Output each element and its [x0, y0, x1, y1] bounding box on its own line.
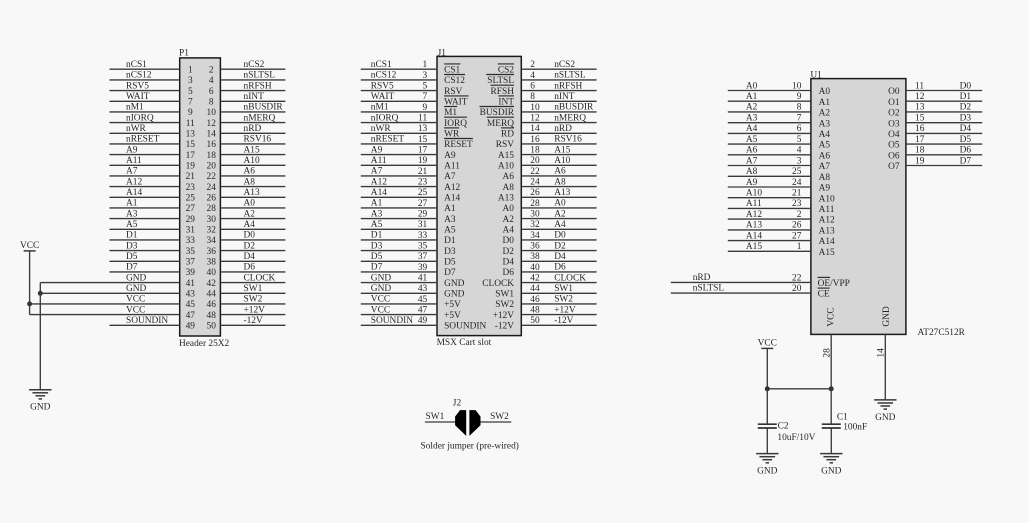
svg-text:D0: D0	[960, 81, 972, 91]
svg-text:VCC: VCC	[126, 295, 145, 305]
svg-text:GND: GND	[444, 279, 465, 289]
svg-text:nRD: nRD	[554, 124, 572, 134]
svg-text:41: 41	[418, 274, 428, 284]
svg-text:14: 14	[207, 130, 217, 140]
svg-text:36: 36	[207, 247, 217, 257]
svg-text:nBUSDIR: nBUSDIR	[554, 103, 594, 113]
svg-text:34: 34	[207, 236, 217, 246]
svg-text:A1: A1	[746, 92, 758, 102]
svg-text:1: 1	[797, 242, 802, 252]
svg-text:29: 29	[418, 210, 428, 220]
svg-text:nRD: nRD	[693, 273, 711, 283]
svg-text:28: 28	[822, 348, 832, 358]
svg-text:A3: A3	[819, 119, 831, 129]
svg-text:A0: A0	[746, 81, 758, 91]
svg-text:RSV5: RSV5	[371, 81, 394, 91]
svg-text:CS12: CS12	[444, 76, 465, 86]
svg-text:10: 10	[792, 81, 802, 91]
svg-text:nCS1: nCS1	[126, 60, 147, 70]
svg-text:nRD: nRD	[244, 124, 262, 134]
svg-text:CLOCK: CLOCK	[482, 279, 514, 289]
svg-text:D4: D4	[503, 258, 515, 268]
svg-text:D5: D5	[960, 135, 972, 145]
svg-text:D2: D2	[244, 241, 256, 251]
svg-text:9: 9	[797, 92, 802, 102]
svg-text:GND: GND	[757, 467, 778, 477]
svg-text:A14: A14	[444, 194, 460, 204]
svg-text:A9: A9	[371, 145, 383, 155]
svg-text:8: 8	[209, 98, 214, 108]
svg-text:O4: O4	[888, 130, 900, 140]
svg-text:16: 16	[207, 140, 217, 150]
svg-text:D2: D2	[960, 103, 972, 113]
svg-text:WAIT: WAIT	[126, 92, 150, 102]
svg-text:nINT: nINT	[554, 92, 575, 102]
svg-text:D7: D7	[126, 263, 138, 273]
svg-text:C2: C2	[778, 422, 789, 432]
svg-text:26: 26	[792, 221, 802, 231]
svg-text:D5: D5	[371, 252, 383, 262]
svg-text:GND: GND	[882, 306, 892, 327]
svg-text:22: 22	[207, 172, 217, 182]
svg-text:18: 18	[530, 146, 540, 156]
svg-text:nCS12: nCS12	[126, 71, 152, 81]
svg-text:RSV16: RSV16	[244, 135, 272, 145]
svg-text:A1: A1	[126, 199, 138, 209]
svg-text:A12: A12	[746, 210, 762, 220]
svg-text:A1: A1	[371, 199, 383, 209]
svg-text:9: 9	[188, 108, 193, 118]
svg-text:VCC: VCC	[126, 305, 145, 315]
svg-text:A5: A5	[371, 220, 383, 230]
svg-text:nM1: nM1	[371, 103, 389, 113]
svg-text:7: 7	[423, 92, 428, 102]
svg-text:A2: A2	[554, 209, 566, 219]
svg-text:A15: A15	[498, 151, 514, 161]
svg-text:SW1: SW1	[244, 284, 263, 294]
svg-text:A1: A1	[819, 98, 831, 108]
svg-text:O5: O5	[888, 141, 900, 151]
svg-text:D1: D1	[126, 231, 138, 241]
svg-text:GND: GND	[126, 273, 147, 283]
svg-text:A6: A6	[244, 167, 256, 177]
svg-text:23: 23	[792, 199, 802, 209]
svg-text:A10: A10	[746, 189, 762, 199]
svg-text:A5: A5	[126, 220, 138, 230]
svg-text:A11: A11	[371, 156, 387, 166]
svg-text:49: 49	[418, 316, 428, 326]
svg-text:17: 17	[186, 151, 196, 161]
svg-text:D0: D0	[503, 236, 515, 246]
svg-text:27: 27	[186, 204, 196, 214]
svg-text:+12V: +12V	[244, 305, 266, 315]
svg-text:A4: A4	[819, 130, 831, 140]
svg-text:J1: J1	[438, 48, 447, 58]
svg-text:D1: D1	[960, 92, 972, 102]
svg-text:+12V: +12V	[493, 311, 515, 321]
svg-text:A10: A10	[498, 162, 514, 172]
svg-text:23: 23	[186, 183, 196, 193]
svg-text:nRFSH: nRFSH	[554, 81, 582, 91]
svg-text:22: 22	[530, 167, 540, 177]
svg-text:D2: D2	[503, 247, 515, 257]
svg-text:nINT: nINT	[244, 92, 265, 102]
svg-text:A7: A7	[819, 162, 831, 172]
svg-text:A15: A15	[554, 145, 570, 155]
svg-text:A13: A13	[554, 188, 570, 198]
svg-text:17: 17	[915, 135, 925, 145]
svg-text:26: 26	[207, 194, 217, 204]
svg-text:2: 2	[797, 210, 802, 220]
svg-text:VCC: VCC	[20, 241, 39, 251]
svg-text:SW2: SW2	[495, 300, 514, 310]
svg-text:A7: A7	[444, 172, 456, 182]
svg-text:VCC: VCC	[758, 339, 777, 349]
svg-text:28: 28	[207, 204, 217, 214]
svg-text:O7: O7	[888, 162, 900, 172]
svg-text:44: 44	[207, 290, 217, 300]
svg-text:32: 32	[530, 220, 540, 230]
svg-text:D6: D6	[554, 263, 566, 273]
svg-text:8: 8	[797, 103, 802, 113]
svg-text:D0: D0	[554, 231, 566, 241]
svg-text:O1: O1	[888, 98, 900, 108]
svg-text:GND: GND	[821, 467, 842, 477]
svg-text:A4: A4	[503, 226, 515, 236]
svg-text:A2: A2	[746, 103, 758, 113]
svg-text:4: 4	[797, 146, 802, 156]
svg-text:A11: A11	[746, 199, 762, 209]
svg-text:A0: A0	[503, 204, 515, 214]
svg-text:10: 10	[207, 108, 217, 118]
svg-text:RSV: RSV	[496, 140, 514, 150]
svg-text:D6: D6	[244, 263, 256, 273]
svg-text:A5: A5	[819, 141, 831, 151]
svg-text:12: 12	[915, 92, 925, 102]
svg-text:GND: GND	[371, 273, 392, 283]
svg-text:19: 19	[186, 162, 196, 172]
svg-text:30: 30	[530, 210, 540, 220]
svg-text:48: 48	[207, 311, 217, 321]
svg-text:19: 19	[915, 156, 925, 166]
svg-text:A0: A0	[819, 87, 831, 97]
svg-text:SW2: SW2	[490, 412, 509, 422]
svg-text:A12: A12	[126, 177, 142, 187]
svg-text:VCC: VCC	[371, 305, 390, 315]
svg-text:18: 18	[915, 146, 925, 156]
svg-text:30: 30	[207, 215, 217, 225]
svg-text:A9: A9	[126, 145, 138, 155]
svg-text:+12V: +12V	[554, 305, 576, 315]
svg-text:15: 15	[915, 114, 925, 124]
svg-text:48: 48	[530, 306, 540, 316]
svg-text:A13: A13	[819, 227, 835, 237]
svg-text:16: 16	[915, 124, 925, 134]
svg-text:nCS1: nCS1	[371, 60, 392, 70]
svg-text:31: 31	[186, 226, 196, 236]
svg-text:A8: A8	[819, 173, 831, 183]
svg-text:nRESET: nRESET	[126, 135, 160, 145]
svg-text:27: 27	[418, 199, 428, 209]
svg-text:24: 24	[530, 178, 540, 188]
svg-text:A14: A14	[746, 231, 762, 241]
svg-text:36: 36	[530, 242, 540, 252]
svg-text:5: 5	[188, 87, 193, 97]
svg-text:U1: U1	[810, 71, 822, 81]
svg-text:11: 11	[186, 119, 195, 129]
svg-text:A11: A11	[444, 162, 460, 172]
svg-text:D1: D1	[371, 231, 383, 241]
svg-text:A2: A2	[244, 209, 256, 219]
svg-text:A0: A0	[244, 199, 256, 209]
svg-text:D7: D7	[960, 156, 972, 166]
svg-text:A11: A11	[819, 205, 835, 215]
svg-text:VCC: VCC	[826, 307, 836, 326]
svg-text:21: 21	[792, 189, 802, 199]
svg-text:GND: GND	[444, 290, 465, 300]
svg-text:CE: CE	[818, 290, 830, 300]
svg-text:nSLTSL: nSLTSL	[554, 71, 586, 81]
svg-text:nCS2: nCS2	[244, 60, 265, 70]
svg-text:A8: A8	[554, 177, 566, 187]
svg-text:nCS12: nCS12	[371, 71, 397, 81]
svg-text:nRESET: nRESET	[371, 135, 405, 145]
svg-text:A0: A0	[554, 199, 566, 209]
svg-text:A12: A12	[371, 177, 387, 187]
svg-text:15: 15	[186, 140, 196, 150]
svg-text:A6: A6	[746, 146, 758, 156]
svg-text:41: 41	[186, 279, 196, 289]
svg-text:13: 13	[418, 124, 428, 134]
svg-text:29: 29	[186, 215, 196, 225]
svg-text:3: 3	[188, 76, 193, 86]
svg-text:D5: D5	[126, 252, 138, 262]
svg-text:46: 46	[530, 295, 540, 305]
svg-text:44: 44	[530, 284, 540, 294]
svg-text:SOUNDIN: SOUNDIN	[444, 322, 486, 332]
svg-text:15: 15	[418, 135, 428, 145]
svg-text:2: 2	[530, 60, 535, 70]
svg-text:A12: A12	[444, 183, 460, 193]
svg-text:O6: O6	[888, 151, 900, 161]
svg-text:A9: A9	[746, 178, 758, 188]
svg-text:13: 13	[186, 130, 196, 140]
svg-text:19: 19	[418, 156, 428, 166]
svg-text:VCC: VCC	[371, 295, 390, 305]
svg-text:42: 42	[207, 279, 217, 289]
svg-text:+5V: +5V	[444, 300, 461, 310]
svg-text:43: 43	[186, 290, 196, 300]
svg-text:37: 37	[186, 258, 196, 268]
svg-text:nMERQ: nMERQ	[554, 113, 586, 123]
svg-text:nSLTSL: nSLTSL	[693, 284, 725, 294]
svg-text:GND: GND	[371, 284, 392, 294]
svg-text:nCS2: nCS2	[554, 60, 575, 70]
svg-text:45: 45	[418, 295, 428, 305]
svg-text:nIORQ: nIORQ	[371, 113, 399, 123]
svg-text:42: 42	[530, 274, 540, 284]
svg-text:A5: A5	[444, 226, 456, 236]
svg-text:Header 25X2: Header 25X2	[179, 339, 230, 349]
svg-text:14: 14	[530, 124, 540, 134]
svg-text:A10: A10	[244, 156, 260, 166]
svg-text:A15: A15	[819, 248, 835, 258]
svg-text:D6: D6	[960, 146, 972, 156]
svg-text:nWR: nWR	[371, 124, 392, 134]
svg-text:SW1: SW1	[495, 290, 514, 300]
svg-text:A15: A15	[746, 242, 762, 252]
svg-text:A7: A7	[126, 167, 138, 177]
svg-text:A8: A8	[746, 167, 758, 177]
svg-text:12: 12	[207, 119, 217, 129]
svg-text:nMERQ: nMERQ	[244, 113, 276, 123]
svg-text:SW1: SW1	[554, 284, 573, 294]
svg-text:43: 43	[418, 284, 428, 294]
svg-text:32: 32	[207, 226, 217, 236]
svg-text:SOUNDIN: SOUNDIN	[126, 316, 168, 326]
svg-text:GND: GND	[875, 413, 896, 423]
svg-text:A4: A4	[554, 220, 566, 230]
svg-text:31: 31	[418, 220, 428, 230]
svg-text:38: 38	[530, 252, 540, 262]
svg-text:A14: A14	[371, 188, 387, 198]
svg-text:A7: A7	[746, 156, 758, 166]
svg-text:47: 47	[186, 311, 196, 321]
svg-text:A10: A10	[819, 194, 835, 204]
svg-text:CLOCK: CLOCK	[244, 273, 276, 283]
svg-text:+5V: +5V	[444, 311, 461, 321]
svg-text:24: 24	[207, 183, 217, 193]
svg-text:nBUSDIR: nBUSDIR	[244, 103, 284, 113]
svg-text:A6: A6	[554, 167, 566, 177]
svg-text:nSLTSL: nSLTSL	[244, 71, 276, 81]
svg-text:SW2: SW2	[244, 295, 263, 305]
svg-text:14: 14	[877, 348, 887, 358]
svg-text:25: 25	[418, 188, 428, 198]
svg-text:34: 34	[530, 231, 540, 241]
svg-text:nM1: nM1	[126, 103, 144, 113]
svg-text:C1: C1	[837, 412, 848, 422]
svg-text:33: 33	[418, 231, 428, 241]
svg-text:5: 5	[423, 82, 428, 92]
svg-text:nIORQ: nIORQ	[126, 113, 154, 123]
svg-text:D6: D6	[503, 268, 515, 278]
svg-text:21: 21	[418, 167, 428, 177]
svg-text:A12: A12	[819, 216, 835, 226]
svg-text:18: 18	[207, 151, 217, 161]
svg-text:P1: P1	[179, 48, 189, 58]
svg-text:11: 11	[418, 114, 427, 124]
svg-text:6: 6	[209, 87, 214, 97]
svg-text:O2: O2	[888, 109, 900, 119]
svg-text:6: 6	[797, 124, 802, 134]
svg-text:28: 28	[530, 199, 540, 209]
svg-text:D3: D3	[444, 247, 456, 257]
svg-text:SOUNDIN: SOUNDIN	[371, 316, 413, 326]
svg-text:A11: A11	[126, 156, 142, 166]
svg-text:D1: D1	[444, 236, 456, 246]
svg-text:13: 13	[915, 103, 925, 113]
svg-text:CLOCK: CLOCK	[554, 273, 586, 283]
svg-text:RSV5: RSV5	[126, 81, 149, 91]
svg-text:A2: A2	[819, 109, 831, 119]
svg-text:GND: GND	[30, 403, 51, 413]
svg-text:A13: A13	[244, 188, 260, 198]
svg-text:AT27C512R: AT27C512R	[918, 328, 966, 338]
svg-text:A13: A13	[746, 221, 762, 231]
svg-text:A14: A14	[126, 188, 142, 198]
svg-text:D3: D3	[126, 241, 138, 251]
svg-text:D7: D7	[444, 268, 456, 278]
svg-text:OE/VPP: OE/VPP	[818, 279, 850, 289]
svg-text:49: 49	[186, 322, 196, 332]
svg-text:A1: A1	[444, 204, 456, 214]
svg-text:A5: A5	[746, 135, 758, 145]
svg-text:25: 25	[792, 167, 802, 177]
svg-text:A4: A4	[244, 220, 256, 230]
svg-text:40: 40	[207, 268, 217, 278]
svg-text:RSV16: RSV16	[554, 135, 582, 145]
svg-text:27: 27	[792, 231, 802, 241]
svg-text:A3: A3	[444, 215, 456, 225]
svg-text:38: 38	[207, 258, 217, 268]
svg-text:50: 50	[530, 316, 540, 326]
svg-text:35: 35	[186, 247, 196, 257]
svg-text:D7: D7	[371, 263, 383, 273]
svg-text:25: 25	[186, 194, 196, 204]
svg-text:Solder jumper (pre-wired): Solder jumper (pre-wired)	[421, 441, 519, 452]
svg-text:A2: A2	[503, 215, 515, 225]
svg-text:26: 26	[530, 188, 540, 198]
svg-text:A9: A9	[819, 184, 831, 194]
svg-text:45: 45	[186, 300, 196, 310]
svg-text:RESET: RESET	[444, 140, 473, 150]
svg-text:3: 3	[797, 156, 802, 166]
svg-text:100nF: 100nF	[843, 422, 867, 432]
svg-text:SW1: SW1	[426, 412, 445, 422]
svg-text:A4: A4	[746, 124, 758, 134]
svg-text:3: 3	[423, 71, 428, 81]
svg-text:MSX Cart slot: MSX Cart slot	[437, 338, 492, 348]
svg-text:4: 4	[530, 71, 535, 81]
svg-text:7: 7	[797, 114, 802, 124]
svg-text:9: 9	[423, 103, 428, 113]
svg-text:D3: D3	[371, 241, 383, 251]
svg-text:39: 39	[186, 268, 196, 278]
svg-text:40: 40	[530, 263, 540, 273]
svg-text:D4: D4	[554, 252, 566, 262]
svg-text:22: 22	[792, 273, 802, 283]
svg-text:A15: A15	[244, 145, 260, 155]
svg-text:50: 50	[207, 322, 217, 332]
svg-text:A3: A3	[746, 114, 758, 124]
svg-text:24: 24	[792, 178, 802, 188]
svg-text:A10: A10	[554, 156, 570, 166]
svg-text:A13: A13	[498, 194, 514, 204]
svg-text:17: 17	[418, 146, 428, 156]
svg-text:4: 4	[209, 76, 214, 86]
svg-text:33: 33	[186, 236, 196, 246]
svg-text:11: 11	[915, 81, 924, 91]
svg-text:nWR: nWR	[126, 124, 147, 134]
svg-text:A14: A14	[819, 237, 835, 247]
svg-text:37: 37	[418, 252, 428, 262]
svg-text:21: 21	[186, 172, 196, 182]
svg-text:A8: A8	[503, 183, 515, 193]
svg-text:-12V: -12V	[554, 316, 573, 326]
svg-text:GND: GND	[126, 284, 147, 294]
svg-text:A8: A8	[244, 177, 256, 187]
